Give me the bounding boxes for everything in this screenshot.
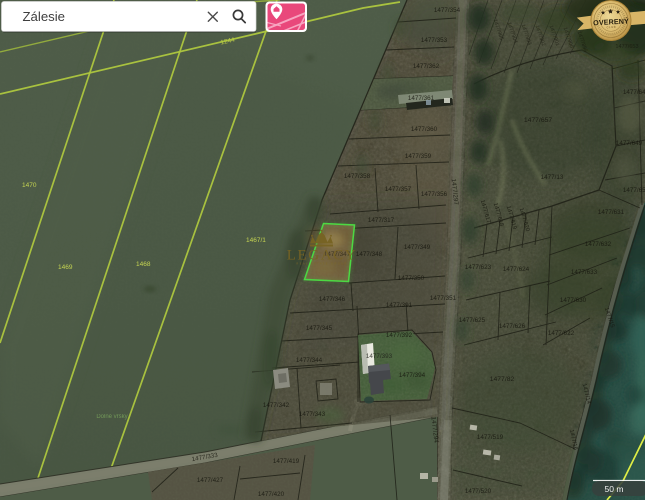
- svg-text:1477/519: 1477/519: [477, 434, 504, 441]
- svg-text:1477/653: 1477/653: [615, 44, 638, 50]
- svg-text:1477/317: 1477/317: [368, 217, 395, 224]
- svg-text:Zálesie: Zálesie: [23, 9, 66, 24]
- svg-text:1477/342: 1477/342: [263, 402, 290, 409]
- svg-text:1477/649: 1477/649: [616, 140, 643, 147]
- svg-text:1467/1: 1467/1: [246, 237, 266, 244]
- svg-text:1477/362: 1477/362: [413, 63, 440, 70]
- svg-text:1477/13: 1477/13: [541, 174, 564, 181]
- svg-text:1477/357: 1477/357: [385, 186, 412, 193]
- svg-text:1477/350: 1477/350: [398, 275, 425, 282]
- svg-text:1477/391: 1477/391: [386, 302, 413, 309]
- svg-text:LEGACY: LEGACY: [287, 248, 357, 264]
- svg-text:1477/657: 1477/657: [524, 117, 553, 124]
- svg-text:1477/394: 1477/394: [399, 372, 426, 379]
- svg-text:1477/393: 1477/393: [366, 353, 393, 360]
- svg-text:1477/420: 1477/420: [258, 491, 285, 498]
- svg-text:1477/626: 1477/626: [499, 323, 526, 330]
- svg-text:1477/359: 1477/359: [405, 153, 432, 160]
- svg-text:50 m: 50 m: [605, 484, 624, 494]
- svg-text:1477/625: 1477/625: [459, 317, 486, 324]
- svg-text:1477/351: 1477/351: [430, 295, 457, 302]
- svg-text:1477/623: 1477/623: [465, 264, 492, 271]
- svg-text:1470: 1470: [22, 182, 37, 189]
- svg-text:1477/624: 1477/624: [503, 266, 530, 273]
- svg-text:CLUB: CLUB: [606, 25, 616, 29]
- svg-text:1477/427: 1477/427: [197, 477, 224, 484]
- svg-text:1477/631: 1477/631: [598, 209, 625, 216]
- svg-text:1468: 1468: [136, 261, 151, 268]
- svg-text:1477/633: 1477/633: [571, 269, 598, 276]
- svg-text:REAL ESTATE GROUP: REAL ESTATE GROUP: [296, 262, 347, 266]
- svg-text:1477/348: 1477/348: [356, 251, 383, 258]
- svg-text:1477/632: 1477/632: [585, 241, 612, 248]
- svg-text:1477/361: 1477/361: [408, 95, 435, 102]
- svg-text:1477/360: 1477/360: [411, 126, 438, 133]
- svg-text:1477/343: 1477/343: [299, 411, 326, 418]
- svg-text:1477/392: 1477/392: [386, 332, 413, 339]
- svg-text:Dolné vŕšky: Dolné vŕšky: [96, 414, 127, 420]
- svg-text:1477/520: 1477/520: [465, 488, 492, 495]
- svg-text:1477/344: 1477/344: [296, 357, 323, 364]
- svg-text:1477/353: 1477/353: [421, 37, 448, 44]
- svg-text:1477/358: 1477/358: [344, 173, 371, 180]
- svg-text:1477/345: 1477/345: [306, 325, 333, 332]
- svg-text:1477/648: 1477/648: [623, 89, 645, 96]
- svg-text:1477/349: 1477/349: [404, 244, 431, 251]
- svg-text:1477/622: 1477/622: [548, 330, 575, 337]
- svg-text:1469: 1469: [58, 264, 73, 271]
- svg-text:1477/356: 1477/356: [421, 191, 448, 198]
- svg-text:1477/630: 1477/630: [560, 297, 587, 304]
- svg-text:1477/650: 1477/650: [623, 187, 645, 194]
- svg-text:1477/346: 1477/346: [319, 296, 346, 303]
- svg-text:1477/354: 1477/354: [434, 7, 461, 14]
- svg-text:1477/82: 1477/82: [490, 376, 515, 383]
- svg-text:1477/419: 1477/419: [273, 458, 300, 465]
